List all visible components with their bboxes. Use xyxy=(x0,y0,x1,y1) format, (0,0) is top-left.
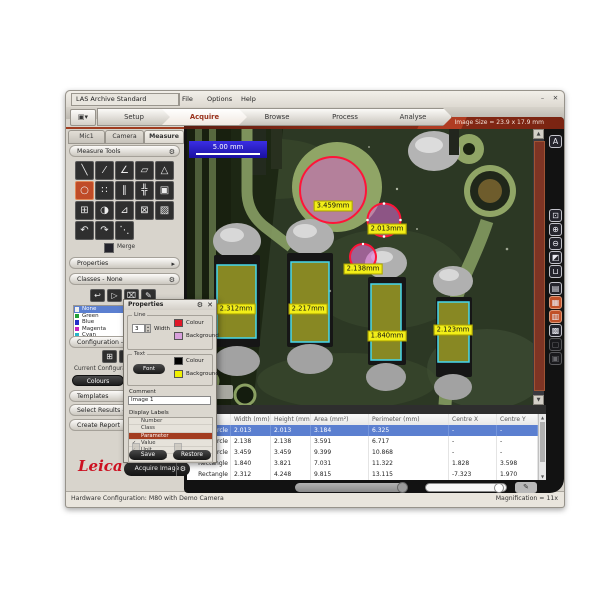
measurement-rect-3[interactable] xyxy=(371,284,401,360)
thumbnail-view-icon[interactable]: ▦ xyxy=(549,296,562,309)
text-background-swatch[interactable] xyxy=(174,370,183,378)
tool-line-icon[interactable]: ╲ xyxy=(75,161,94,180)
run-class-icon[interactable]: ▷ xyxy=(107,289,122,302)
application-window: LAS Archive Standard File Options Help –… xyxy=(65,90,565,508)
minimize-button[interactable]: – xyxy=(537,93,548,103)
circle-label-2[interactable]: 2.013mm xyxy=(368,224,407,235)
table-row[interactable]: 3PointCircle3.4593.4599.39910.868-- xyxy=(187,447,538,458)
image-horizontal-scrollbar[interactable]: ◀ xyxy=(187,405,546,414)
tool-polygon-icon[interactable]: ▱ xyxy=(135,161,154,180)
scroll-up-icon[interactable]: ▲ xyxy=(539,414,546,421)
measurement-circle-1[interactable] xyxy=(300,157,366,223)
image-size-readout: Image Size = 23.9 x 17.9 mm xyxy=(454,119,544,126)
circle-label-1[interactable]: 3.459mm xyxy=(314,201,353,212)
classes-panel-title: Classes - None xyxy=(77,276,123,283)
tool-redo-icon[interactable]: ↷ xyxy=(95,221,114,240)
tool-circle-icon[interactable]: ○ xyxy=(75,181,94,200)
compare-view-icon[interactable]: ⊔ xyxy=(549,265,562,278)
vertical-scroll-thumb[interactable] xyxy=(534,141,545,391)
scale-bar-line xyxy=(196,153,260,155)
measure-tools-title: Measure Tools xyxy=(77,148,121,155)
assign-class-icon[interactable]: ↩ xyxy=(90,289,105,302)
layout-b-icon: ▣ xyxy=(549,352,562,365)
tool-crop-region-icon[interactable]: ▨ xyxy=(155,201,174,220)
new-config-icon[interactable]: ⊞ xyxy=(102,350,117,363)
comment-label: Comment xyxy=(129,388,156,396)
display-labels-title: Display Labels xyxy=(129,409,169,417)
restore-button[interactable]: Restore xyxy=(173,450,211,460)
table-vertical-scrollbar[interactable]: ▲ ▼ xyxy=(538,414,546,480)
line-group: Line 3 ▴▾ Width Colour Background xyxy=(127,315,213,350)
overlay-annotations-icon[interactable]: A xyxy=(549,135,562,148)
merge-checkbox[interactable] xyxy=(104,243,114,253)
spinner-arrows-icon[interactable]: ▴▾ xyxy=(145,324,151,333)
app-mode-selector[interactable]: LAS Archive Standard xyxy=(71,93,180,106)
tool-polyline-icon[interactable]: ⁄ xyxy=(95,161,114,180)
text-group: Text Font Colour Background xyxy=(127,354,213,386)
properties-dialog[interactable]: Properties ⚙ ✕ Line 3 ▴▾ Width Colour Ba… xyxy=(123,299,217,463)
tool-multipoint-icon[interactable]: ∷ xyxy=(95,181,114,200)
tool-protractor-icon[interactable]: ⊿ xyxy=(115,201,134,220)
font-button[interactable]: Font xyxy=(133,364,165,374)
tab-process[interactable]: Process xyxy=(306,108,384,126)
menu-options[interactable]: Options xyxy=(204,93,235,105)
measure-tools-header[interactable]: Measure Tools ⚙ xyxy=(69,145,180,157)
image-vertical-scrollbar[interactable]: ▲ ▼ xyxy=(533,129,544,405)
gear-icon[interactable]: ⚙ xyxy=(197,300,203,310)
measurement-rect-1[interactable] xyxy=(217,265,256,338)
tool-add-comment-icon[interactable]: ⊞ xyxy=(75,201,94,220)
classes-panel-header[interactable]: Classes - None ⚙ xyxy=(69,273,180,285)
tool-angle-icon[interactable]: ∠ xyxy=(115,161,134,180)
menu-file[interactable]: File xyxy=(179,93,196,105)
tool-rotate-icon[interactable]: ◑ xyxy=(95,201,114,220)
table-row[interactable]: 3PointCircle2.0132.0133.1846.325-- xyxy=(187,425,538,436)
pattern-view-icon[interactable]: ▩ xyxy=(549,324,562,337)
scroll-down-icon[interactable]: ▼ xyxy=(533,395,544,405)
zoom-slider-knob[interactable] xyxy=(397,482,408,493)
tool-stamp-icon[interactable]: ▣ xyxy=(155,181,174,200)
zoom-slider[interactable] xyxy=(295,483,407,492)
viewer-bottom-bar: ✎ xyxy=(187,480,546,494)
properties-panel-title: Properties xyxy=(77,260,108,267)
scale-bar-label: 5.00 mm xyxy=(213,143,244,151)
tab-measure[interactable]: Measure xyxy=(144,130,184,144)
focus-slider-knob[interactable] xyxy=(494,483,504,493)
zoom-in-icon[interactable]: ⊕ xyxy=(549,223,562,236)
menu-bar: LAS Archive Standard File Options Help –… xyxy=(66,91,564,108)
properties-panel-header[interactable]: Properties ▸ xyxy=(69,257,180,269)
scroll-down-icon[interactable]: ▼ xyxy=(539,473,546,480)
class-color-chip xyxy=(75,314,79,319)
text-background-label: Background xyxy=(186,370,219,378)
measurement-rect-2[interactable] xyxy=(291,262,329,342)
tool-delete-region-icon[interactable]: ⊠ xyxy=(135,201,154,220)
rect-label-4[interactable]: 2.123mm xyxy=(434,325,473,336)
gear-icon[interactable]: ⚙ xyxy=(169,274,175,286)
grid-view-icon[interactable]: ▥ xyxy=(549,310,562,323)
tool-undo-icon[interactable]: ↶ xyxy=(75,221,94,240)
scale-bar[interactable]: 5.00 mm xyxy=(189,141,267,158)
display-item-value[interactable]: ✓Value xyxy=(129,440,212,447)
menu-help[interactable]: Help xyxy=(238,93,259,105)
close-icon[interactable]: ✕ xyxy=(207,300,213,310)
line-group-label: Line xyxy=(132,312,147,319)
acquire-image-label: Acquire Image xyxy=(135,465,180,472)
acquire-image-button[interactable]: Acquire Image ⚙ xyxy=(124,462,190,476)
tool-triangle-icon[interactable]: △ xyxy=(155,161,174,180)
line-width-spinner[interactable]: 3 xyxy=(132,324,145,333)
tab-browse[interactable]: Browse xyxy=(238,108,316,126)
rect-label-3[interactable]: 1.840mm xyxy=(368,331,407,342)
expand-icon[interactable]: ▸ xyxy=(171,258,175,270)
fit-to-window-icon[interactable]: ⊡ xyxy=(549,209,562,222)
text-colour-label: Colour xyxy=(186,357,204,365)
layout-a-icon: ▢ xyxy=(549,338,562,351)
colours-button[interactable]: Colours xyxy=(72,375,124,386)
display-item-number[interactable]: Number xyxy=(129,418,212,425)
circle-label-3[interactable]: 2.138mm xyxy=(344,264,383,275)
text-colour-swatch[interactable] xyxy=(174,357,183,365)
gear-icon[interactable]: ⚙ xyxy=(169,146,175,158)
close-button[interactable]: ✕ xyxy=(550,93,561,103)
tool-move-icon[interactable]: ╬ xyxy=(135,181,154,200)
tool-parallel-icon[interactable]: ∥ xyxy=(115,181,134,200)
text-group-label: Text xyxy=(132,351,147,358)
tab-mic[interactable]: Mic1 xyxy=(68,130,105,144)
view-selector-button[interactable]: ▣▾ xyxy=(70,109,96,126)
tab-acquire[interactable]: Acquire xyxy=(161,108,248,126)
line-background-swatch[interactable] xyxy=(174,332,183,340)
table-scroll-thumb[interactable] xyxy=(540,422,545,462)
results-table: Width (mm) Height (mm) ▵ Area (mm²) Peri… xyxy=(187,414,546,480)
table-row[interactable]: Rectangle1.8403.8217.03111.3221.8283.598 xyxy=(187,458,538,469)
scroll-up-icon[interactable]: ▲ xyxy=(533,129,544,139)
display-item-parameter[interactable]: Parameter xyxy=(129,433,212,440)
viewer-frame: Live Image Size = 23.9 x 17.9 mm xyxy=(184,117,564,493)
leica-logo: Leica xyxy=(78,457,123,475)
gallery-list-icon[interactable]: ▤ xyxy=(549,282,562,295)
tab-analyse[interactable]: Analyse xyxy=(374,108,452,126)
class-color-chip xyxy=(75,327,79,332)
acquire-settings-icon[interactable]: ⚙ xyxy=(176,462,186,476)
line-colour-swatch[interactable] xyxy=(174,319,183,327)
invert-view-icon[interactable]: ◩ xyxy=(549,251,562,264)
image-viewport[interactable]: 5.00 mm 3.459mm 2.013mm 2.138mm 2.312mm … xyxy=(187,129,533,405)
tab-camera[interactable]: Camera xyxy=(105,130,144,144)
merge-label: Merge xyxy=(117,244,135,250)
width-label: Width xyxy=(154,325,170,333)
rect-label-1[interactable]: 2.312mm xyxy=(217,304,256,315)
focus-slider[interactable] xyxy=(425,483,507,492)
line-background-label: Background xyxy=(186,332,219,340)
rect-label-2[interactable]: 2.217mm xyxy=(289,304,328,315)
comment-input[interactable] xyxy=(128,396,211,405)
save-button[interactable]: Save xyxy=(129,450,167,460)
display-item-class[interactable]: Class xyxy=(129,425,212,432)
line-colour-label: Colour xyxy=(186,319,204,327)
table-row[interactable]: Rectangle2.3124.2489.81513.115-7.3231.97… xyxy=(187,469,538,480)
table-row[interactable]: 3PointCircle2.1382.1383.5916.717-- xyxy=(187,436,538,447)
class-color-chip xyxy=(75,320,79,325)
zoom-out-icon[interactable]: ⊖ xyxy=(549,237,562,250)
annotate-pen-icon[interactable]: ✎ xyxy=(515,482,537,493)
class-color-chip xyxy=(75,307,79,312)
tool-points-icon[interactable]: ⋱ xyxy=(115,221,134,240)
tab-setup[interactable]: Setup xyxy=(97,108,171,126)
